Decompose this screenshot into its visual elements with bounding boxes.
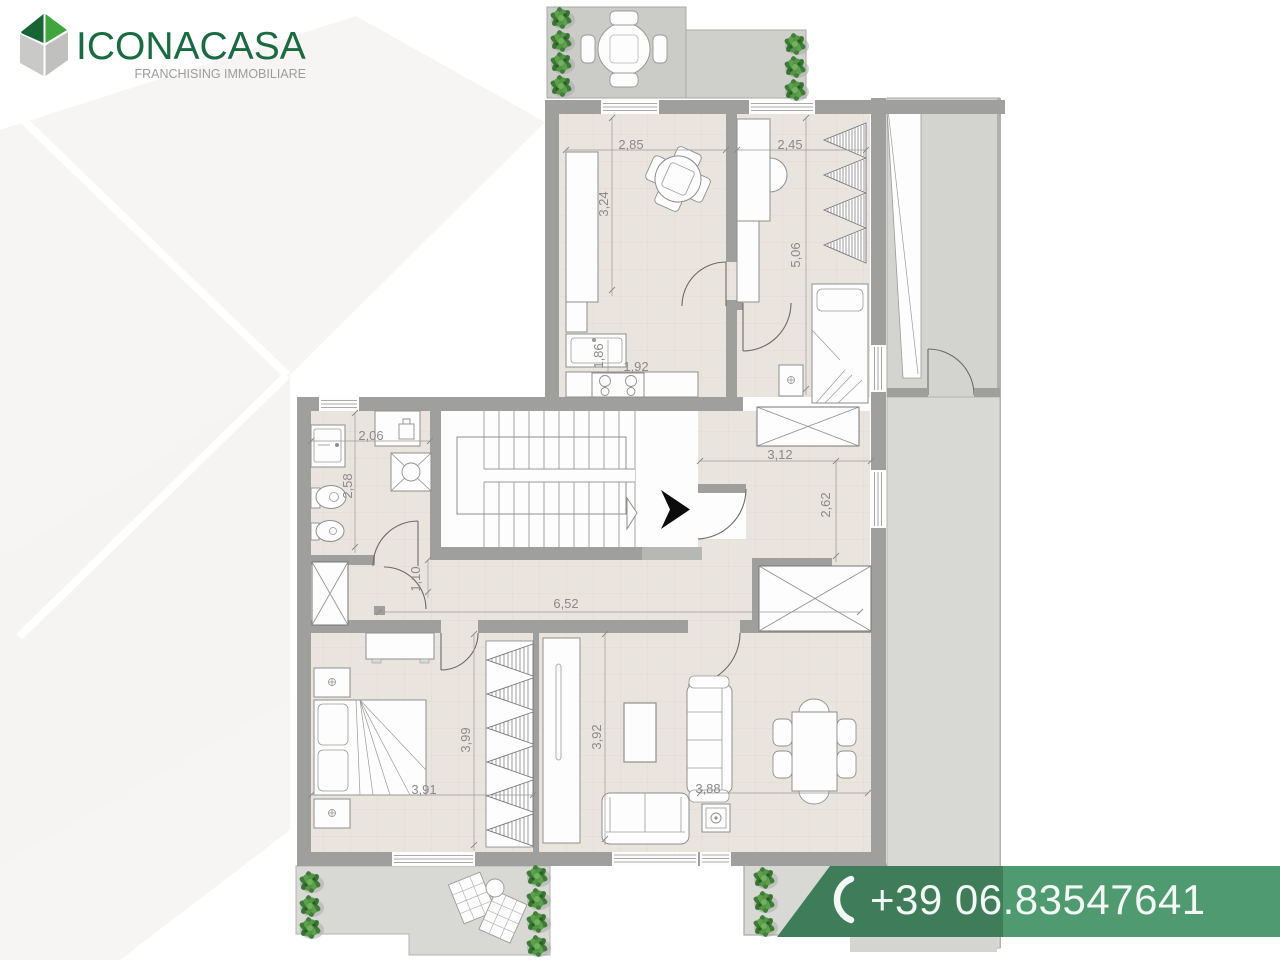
svg-text:3,88: 3,88 bbox=[695, 781, 720, 796]
svg-text:3,99: 3,99 bbox=[458, 727, 473, 752]
svg-text:3,24: 3,24 bbox=[596, 191, 611, 216]
svg-text:+39 06.83547641: +39 06.83547641 bbox=[870, 876, 1206, 923]
svg-text:2,45: 2,45 bbox=[777, 137, 802, 152]
svg-text:2,58: 2,58 bbox=[340, 473, 355, 498]
svg-text:3,12: 3,12 bbox=[767, 447, 792, 462]
svg-text:2,06: 2,06 bbox=[358, 428, 383, 443]
svg-text:1,86: 1,86 bbox=[591, 343, 606, 368]
svg-text:5,06: 5,06 bbox=[788, 242, 803, 267]
svg-text:ICONACASA: ICONACASA bbox=[76, 25, 306, 68]
svg-text:3,92: 3,92 bbox=[589, 724, 604, 749]
svg-text:3,91: 3,91 bbox=[411, 782, 436, 797]
svg-text:FRANCHISING IMMOBILIARE: FRANCHISING IMMOBILIARE bbox=[134, 67, 306, 81]
svg-text:6,52: 6,52 bbox=[553, 596, 578, 611]
svg-text:1,10: 1,10 bbox=[408, 566, 423, 591]
svg-text:2,62: 2,62 bbox=[818, 492, 833, 517]
svg-text:1,92: 1,92 bbox=[623, 359, 648, 374]
svg-text:2,85: 2,85 bbox=[618, 137, 643, 152]
